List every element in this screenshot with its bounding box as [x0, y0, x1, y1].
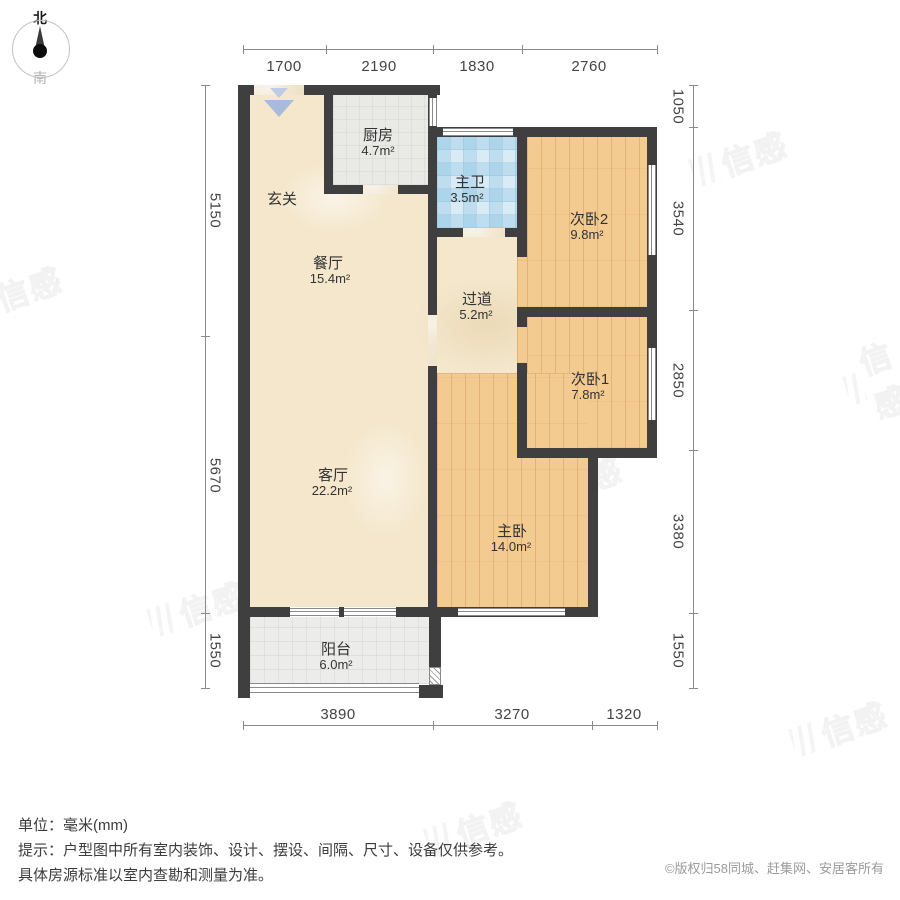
room-area-dining: 15.4m²	[299, 271, 361, 286]
wall-bedroom1-left-a	[517, 317, 527, 327]
floorplan-page: { "compass": { "north": "北", "south": "南…	[0, 0, 900, 900]
window-bedroom1	[648, 348, 656, 420]
room-label-balcony: 阳台	[306, 638, 366, 659]
dim-top-1: 1700	[254, 58, 314, 75]
dim-tick	[689, 688, 698, 689]
dim-right-4: 3380	[670, 502, 687, 562]
wall-bathroom-bedroom2	[517, 137, 527, 257]
dim-tick	[243, 45, 244, 54]
wall-balcony-corner	[419, 685, 443, 698]
room-area-living: 22.2m²	[301, 483, 363, 498]
wall-kitchen-bottom-a	[324, 185, 363, 194]
room-label-hallway: 过道	[447, 288, 507, 309]
sliding-door-right	[344, 608, 396, 616]
dim-line-left	[205, 85, 206, 688]
room-area-master: 14.0m²	[480, 539, 542, 554]
dim-tick	[592, 721, 593, 730]
dim-top-2: 2190	[349, 58, 409, 75]
dim-tick	[657, 45, 658, 54]
wall-bedroom2-top	[517, 127, 657, 137]
wall-top-left	[238, 85, 254, 95]
wall-mid-lower	[428, 366, 437, 607]
window-balcony-front	[250, 683, 419, 693]
floorplan: 玄关 厨房 4.7m² 主卫 3.5m² 次卧2 9.8m² 餐厅 15.4m²…	[0, 0, 900, 900]
dim-right-3: 2850	[670, 351, 687, 411]
dim-left-2: 5670	[207, 446, 224, 506]
dim-tick	[201, 85, 210, 86]
room-area-kitchen: 4.7m²	[348, 143, 408, 158]
wall-kitchen-left	[324, 95, 333, 194]
room-label-entry: 玄关	[252, 188, 312, 209]
dim-left-3: 1550	[207, 621, 224, 681]
dim-line-bottom	[243, 725, 657, 726]
dim-tick	[433, 721, 434, 730]
window-master-bedroom	[458, 608, 565, 616]
dim-bottom-1: 3890	[308, 706, 368, 723]
room-area-bedroom2: 9.8m²	[557, 227, 617, 242]
room-area-hallway: 5.2m²	[446, 307, 506, 322]
wall-balcony-right	[429, 617, 441, 667]
dim-left-1: 5150	[207, 181, 224, 241]
door-opening-bedroom2	[517, 257, 527, 307]
room-area-bedroom1: 7.8m²	[558, 387, 618, 402]
tip-note-line1: 提示：户型图中所有室内装饰、设计、摆设、间隔、尺寸、设备仅供参考。	[18, 839, 513, 860]
floor-master-bedroom	[437, 373, 588, 608]
wall-living-bottom-b	[396, 607, 437, 617]
dim-tick	[689, 450, 698, 451]
dim-tick	[689, 127, 698, 128]
door-opening-bedroom1	[517, 325, 527, 363]
unit-note: 单位：毫米(mm)	[18, 814, 128, 835]
dim-line-top	[243, 49, 657, 50]
copyright-note: ©版权归58同城、赶集网、安居客所有	[665, 858, 884, 877]
dim-tick	[433, 45, 434, 54]
room-label-bedroom1: 次卧1	[559, 368, 621, 389]
wall-living-bottom-a	[238, 607, 290, 617]
window-balcony-side	[429, 667, 441, 685]
room-label-master: 主卧	[482, 520, 542, 541]
dim-tick	[201, 336, 210, 337]
dim-right-2: 3540	[670, 189, 687, 249]
wall-master-right	[588, 448, 598, 617]
dim-right-5: 1550	[670, 621, 687, 681]
dim-right-1: 1050	[670, 77, 687, 137]
room-label-bathroom: 主卫	[440, 171, 500, 192]
dim-top-4: 2760	[559, 58, 619, 75]
sliding-door-left	[290, 608, 339, 616]
dim-tick	[657, 721, 658, 730]
door-opening-hallway	[428, 315, 437, 366]
room-label-bedroom2: 次卧2	[558, 208, 620, 229]
dim-tick	[201, 613, 210, 614]
wall-bathroom-bottom-b	[505, 228, 527, 237]
wall-bedroom-divider	[517, 307, 657, 317]
dim-line-right	[693, 85, 694, 688]
dim-tick	[522, 45, 523, 54]
door-opening-kitchen	[363, 185, 398, 194]
dim-tick	[689, 85, 698, 86]
dim-tick	[201, 688, 210, 689]
door-opening-bathroom	[463, 228, 505, 237]
room-area-balcony: 6.0m²	[305, 657, 367, 672]
window-bedroom2	[648, 165, 656, 255]
wall-mid-upper	[428, 95, 437, 315]
dim-tick	[326, 45, 327, 54]
dim-tick	[689, 613, 698, 614]
dim-tick	[243, 721, 244, 730]
room-area-bathroom: 3.5m²	[437, 190, 497, 205]
dim-bottom-2: 3270	[482, 706, 542, 723]
room-label-dining: 餐厅	[298, 252, 358, 273]
tip-note-line2: 具体房源标准以室内查勘和测量为准。	[18, 864, 273, 885]
wall-bathroom-bottom-a	[428, 228, 463, 237]
dim-top-3: 1830	[447, 58, 507, 75]
window-kitchen-side	[429, 98, 437, 126]
wall-bedroom1-left-b	[517, 363, 527, 448]
room-label-kitchen: 厨房	[348, 124, 408, 145]
wall-top-kitchen	[304, 85, 440, 95]
entrance-arrow-icon	[264, 100, 294, 117]
window-bathroom-top	[443, 128, 513, 136]
room-label-living: 客厅	[303, 464, 363, 485]
wall-bedroom1-bottom	[517, 448, 657, 458]
entrance-arrow-small-icon	[270, 88, 288, 98]
dim-bottom-3: 1320	[594, 706, 654, 723]
dim-tick	[689, 310, 698, 311]
